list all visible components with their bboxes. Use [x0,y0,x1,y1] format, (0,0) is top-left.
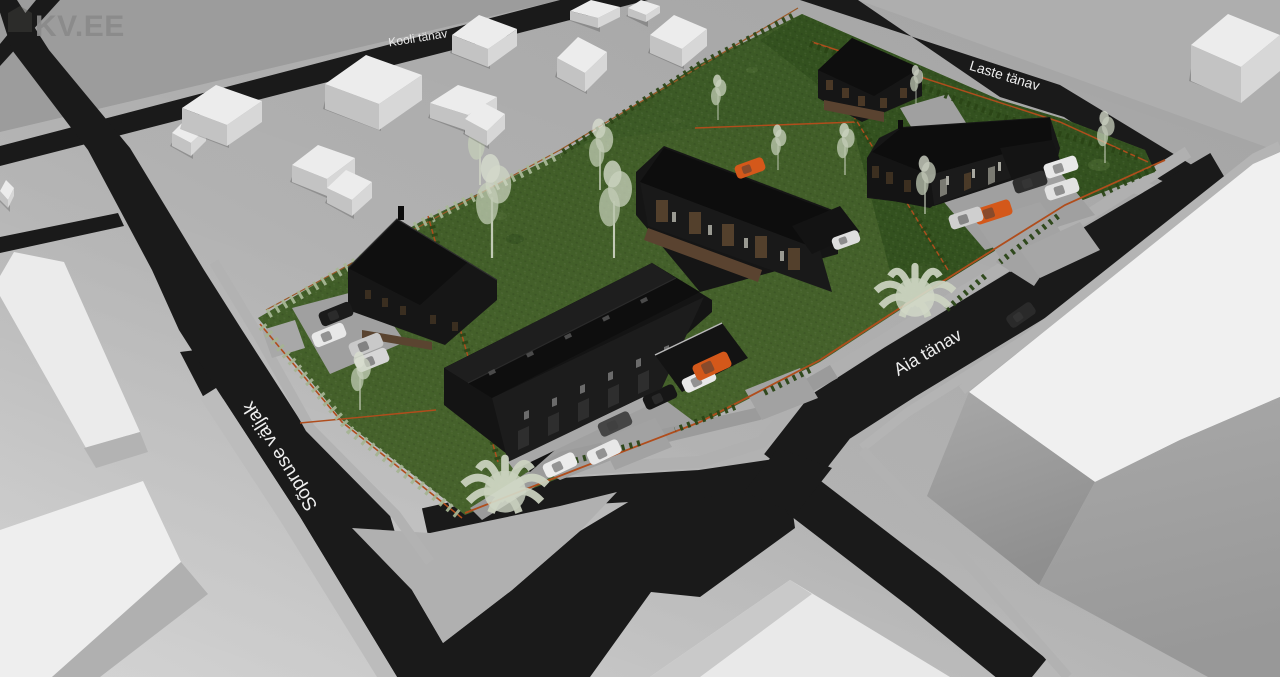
svg-text:KV.EE: KV.EE [35,10,125,43]
